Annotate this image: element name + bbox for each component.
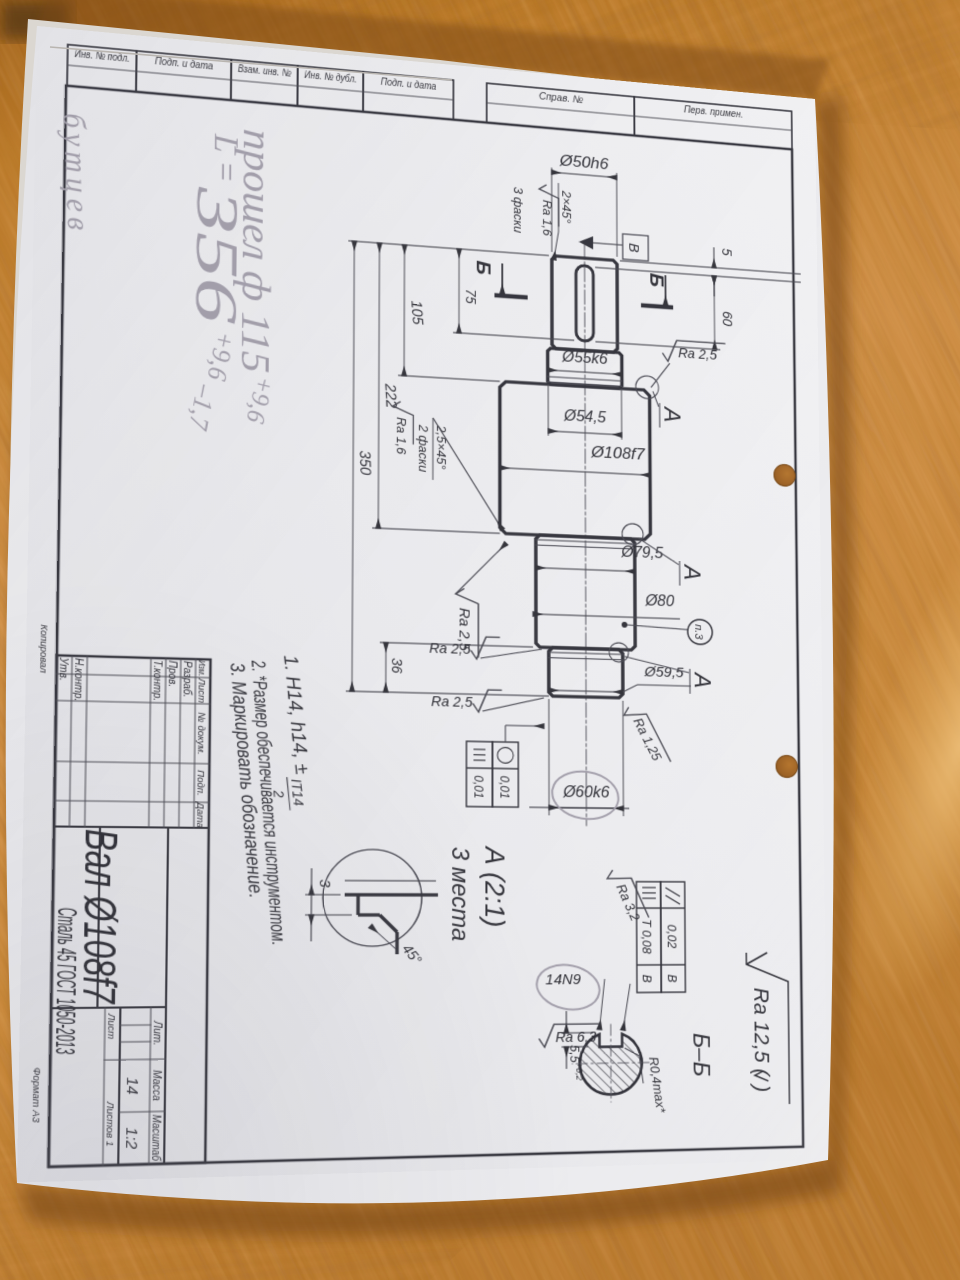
- svg-text:Ø79,5: Ø79,5: [620, 543, 663, 562]
- svg-text:Ra 2,5: Ra 2,5: [431, 694, 473, 711]
- svg-text:2 фаски: 2 фаски: [416, 423, 431, 472]
- svg-text:1:2: 1:2: [121, 1127, 140, 1149]
- svg-text:Дата: Дата: [195, 801, 207, 828]
- svg-text:Пров.: Пров.: [165, 660, 178, 687]
- svg-text:п.3: п.3: [692, 624, 704, 640]
- svg-text:Б: Б: [645, 272, 667, 287]
- svg-text:14N9: 14N9: [545, 972, 581, 989]
- svg-text:3: 3: [317, 880, 334, 889]
- svg-text:Изм.: Изм.: [196, 660, 207, 676]
- svg-text:Т.контр.: Т.контр.: [150, 660, 163, 701]
- svg-text:Ø55k6: Ø55k6: [561, 348, 608, 368]
- svg-text:В: В: [640, 975, 654, 983]
- svg-text:Ra 1,6: Ra 1,6: [540, 199, 554, 236]
- svg-text:75: 75: [463, 288, 479, 305]
- svg-text:5: 5: [719, 248, 734, 257]
- svg-text:Ra 6,3: Ra 6,3: [555, 1029, 596, 1045]
- svg-text:Лист: Лист: [105, 1012, 117, 1039]
- svg-text:Масса: Масса: [149, 1070, 162, 1101]
- svg-text:В: В: [625, 242, 641, 253]
- svg-text:Подп.: Подп.: [195, 770, 207, 796]
- svg-text:Листов 1: Листов 1: [104, 1100, 116, 1146]
- svg-text:А: А: [659, 405, 685, 423]
- svg-text:Сталь 45 ГОСТ 1050-2013: Сталь 45 ГОСТ 1050-2013: [50, 908, 81, 1055]
- svg-text:Б–Б: Б–Б: [688, 1033, 715, 1077]
- svg-text:Копировал: Копировал: [38, 624, 50, 673]
- svg-text:Ø80: Ø80: [644, 592, 675, 610]
- svg-text:0,01: 0,01: [471, 775, 484, 798]
- svg-text:Лист: Лист: [196, 677, 207, 704]
- svg-text:2×45°: 2×45°: [559, 189, 573, 223]
- svg-text:В: В: [665, 974, 679, 982]
- svg-text:Т 0,08: Т 0,08: [639, 919, 654, 954]
- svg-text:IT14: IT14: [288, 778, 307, 807]
- svg-text:Формат A3: Формат A3: [30, 1067, 43, 1122]
- svg-text:356: 356: [183, 184, 248, 326]
- svg-text:Ø54,5: Ø54,5: [563, 407, 607, 426]
- svg-text:Утв.: Утв.: [56, 656, 69, 681]
- svg-text:350: 350: [356, 450, 374, 475]
- svg-text:14: 14: [122, 1077, 141, 1095]
- svg-text:5,5: 5,5: [567, 1045, 582, 1063]
- svg-text:0,02: 0,02: [665, 925, 679, 949]
- svg-text:Н.контр.: Н.контр.: [71, 658, 84, 702]
- svg-text:№ докум.: № докум.: [196, 712, 208, 755]
- svg-text:105: 105: [407, 301, 425, 325]
- svg-text:Ø60k6: Ø60k6: [562, 783, 610, 801]
- svg-text:Б: Б: [472, 260, 495, 276]
- svg-text:0,01: 0,01: [497, 776, 510, 799]
- svg-text:Ra 2,5: Ra 2,5: [429, 640, 471, 657]
- svg-text:А: А: [679, 563, 705, 581]
- svg-text:Разраб.: Разраб.: [180, 661, 193, 698]
- svg-text:Ra 2,5: Ra 2,5: [678, 345, 717, 362]
- svg-text:36: 36: [389, 658, 405, 674]
- svg-text:L =: L =: [207, 132, 247, 184]
- svg-text:А (2:1): А (2:1): [479, 845, 509, 928]
- svg-text:Масштаб: Масштаб: [149, 1115, 162, 1162]
- svg-text:3 места: 3 места: [447, 847, 475, 941]
- svg-text:Ø108f7: Ø108f7: [590, 443, 646, 464]
- svg-text:Ra 12,5 (: Ra 12,5 (: [749, 987, 773, 1078]
- svg-text:60: 60: [720, 311, 735, 327]
- svg-text:+0,2: +0,2: [574, 1063, 585, 1081]
- svg-text:Лит.: Лит.: [150, 1020, 163, 1046]
- svg-text:А: А: [690, 671, 716, 689]
- svg-text:Ra 1,6: Ra 1,6: [394, 417, 409, 455]
- svg-text:3 фаски: 3 фаски: [511, 186, 525, 233]
